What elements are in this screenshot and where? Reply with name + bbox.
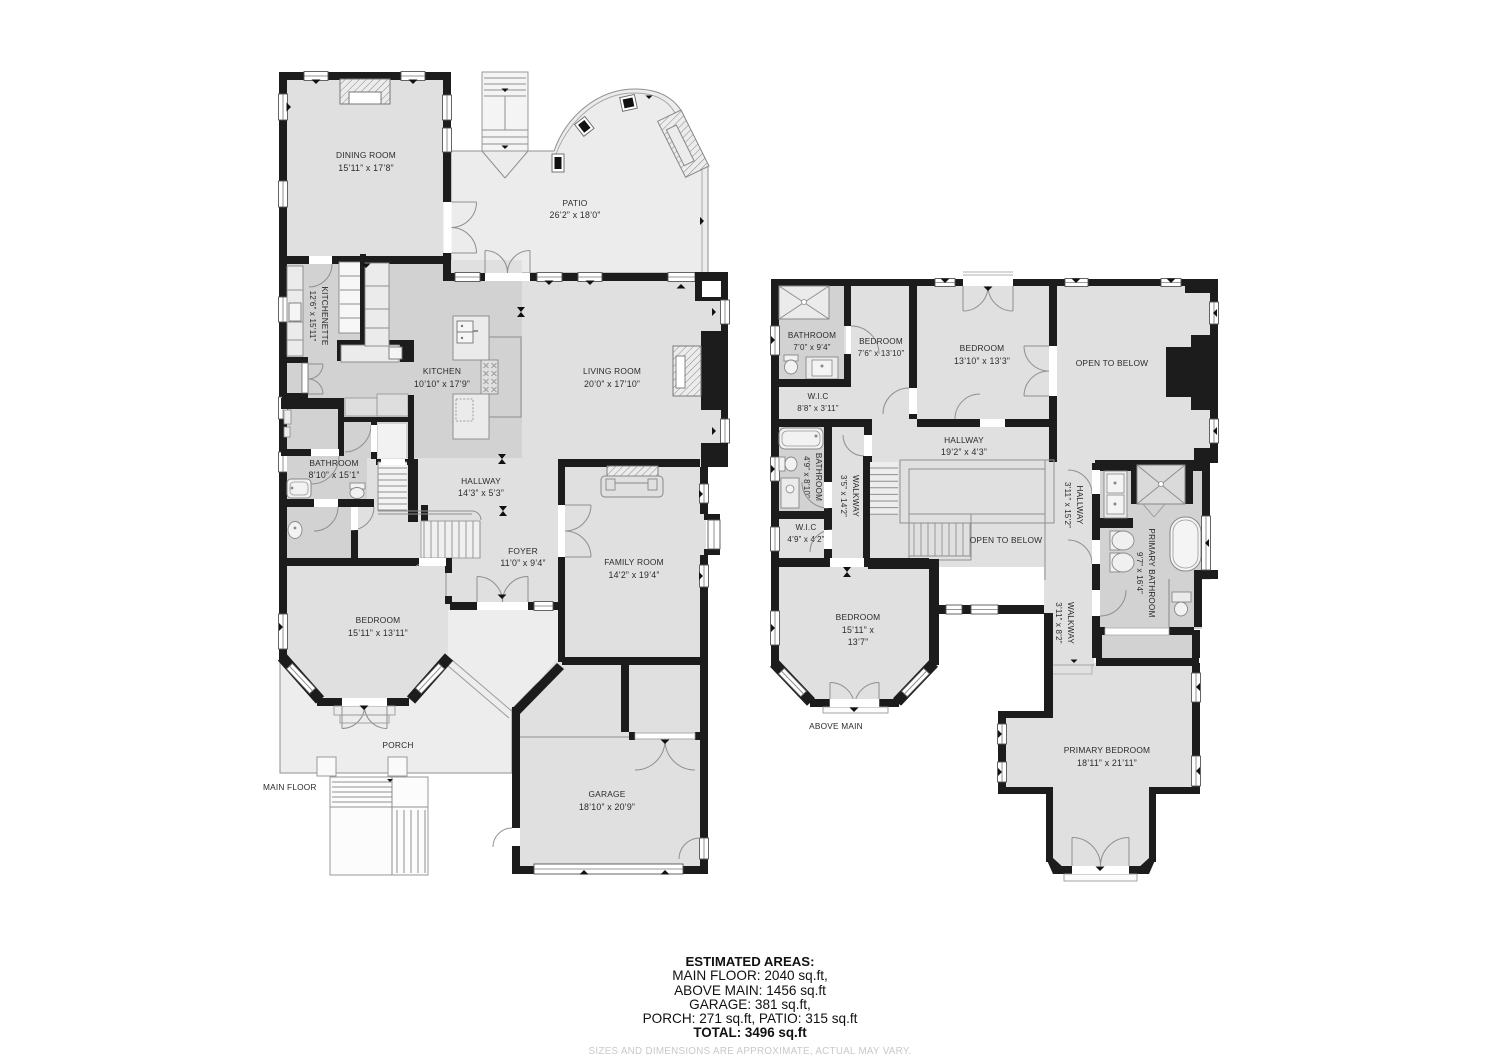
svg-text:BEDROOM: BEDROOM (836, 612, 881, 622)
svg-text:18’11” x 21’11”: 18’11” x 21’11” (1077, 758, 1137, 768)
svg-text:7’0” x 9’4”: 7’0” x 9’4” (793, 343, 830, 352)
svg-text:BEDROOM: BEDROOM (356, 615, 401, 625)
svg-text:15’11” x 13’11”: 15’11” x 13’11” (348, 628, 408, 638)
svg-text:KITCHENETTE: KITCHENETTE (320, 286, 329, 345)
svg-text:BATHROOM: BATHROOM (309, 458, 358, 468)
svg-text:3’5” x 14’2”: 3’5” x 14’2” (839, 475, 848, 517)
svg-text:20’0” x 17’10”: 20’0” x 17’10” (584, 379, 640, 389)
svg-text:19’2” x 4’3”: 19’2” x 4’3” (941, 447, 987, 457)
svg-text:4’9” x 4’2”: 4’9” x 4’2” (787, 535, 824, 544)
svg-text:3’11” x 8’2”: 3’11” x 8’2” (1054, 602, 1063, 644)
svg-text:W.I.C: W.I.C (795, 523, 816, 532)
svg-text:FAMILY ROOM: FAMILY ROOM (604, 557, 664, 567)
svg-text:15’11” x: 15’11” x (842, 625, 875, 635)
svg-text:HALLWAY: HALLWAY (1075, 485, 1084, 524)
svg-text:PRIMARY BEDROOM: PRIMARY BEDROOM (1064, 745, 1150, 755)
svg-text:26’2” x 18’0”: 26’2” x 18’0” (549, 210, 600, 220)
svg-text:DINING ROOM: DINING ROOM (336, 150, 396, 160)
svg-text:OPEN TO BELOW: OPEN TO BELOW (1076, 358, 1149, 368)
svg-text:9’7” x 16’4”: 9’7” x 16’4” (1135, 552, 1144, 594)
svg-text:OPEN TO BELOW: OPEN TO BELOW (970, 535, 1043, 545)
svg-text:MAIN FLOOR: MAIN FLOOR (263, 782, 317, 792)
svg-text:GARAGE: GARAGE (588, 789, 625, 799)
svg-text:LIVING ROOM: LIVING ROOM (583, 366, 641, 376)
svg-text:KITCHEN: KITCHEN (423, 366, 461, 376)
svg-text:PRIMARY BATHROOM: PRIMARY BATHROOM (1147, 528, 1156, 617)
svg-text:18’10” x 20’9”: 18’10” x 20’9” (579, 802, 635, 812)
svg-text:WALKWAY: WALKWAY (851, 475, 860, 517)
svg-text:BATHROOM: BATHROOM (788, 331, 836, 340)
svg-text:13’10” x 13’3”: 13’10” x 13’3” (954, 356, 1010, 366)
svg-text:BEDROOM: BEDROOM (960, 343, 1005, 353)
svg-text:11’0” x 9’4”: 11’0” x 9’4” (500, 558, 545, 568)
svg-text:FOYER: FOYER (508, 546, 538, 556)
svg-text:10’10” x 17’9”: 10’10” x 17’9” (414, 379, 470, 389)
svg-text:HALLWAY: HALLWAY (461, 476, 501, 486)
svg-text:W.I.C: W.I.C (807, 392, 828, 401)
svg-text:PATIO: PATIO (563, 198, 588, 208)
svg-text:14’3” x 5’3”: 14’3” x 5’3” (458, 488, 504, 498)
svg-text:14’2” x 19’4”: 14’2” x 19’4” (608, 570, 659, 580)
svg-text:WALKWAY: WALKWAY (1066, 602, 1075, 644)
svg-text:3’11” x 15’2”: 3’11” x 15’2” (1063, 482, 1072, 528)
svg-text:ABOVE MAIN: ABOVE MAIN (809, 721, 863, 731)
svg-text:HALLWAY: HALLWAY (944, 435, 984, 445)
svg-text:PORCH: PORCH (382, 740, 413, 750)
svg-text:15’11” x 17’8”: 15’11” x 17’8” (338, 163, 393, 173)
svg-text:BEDROOM: BEDROOM (859, 337, 903, 346)
svg-text:BATHROOM: BATHROOM (814, 453, 823, 501)
svg-text:8’8” x 3’11”: 8’8” x 3’11” (797, 404, 839, 413)
svg-text:12’6” x 15’11”: 12’6” x 15’11” (308, 291, 317, 342)
svg-text:7’6” x 13’10”: 7’6” x 13’10” (858, 349, 905, 358)
svg-text:13’7”: 13’7” (848, 637, 869, 647)
